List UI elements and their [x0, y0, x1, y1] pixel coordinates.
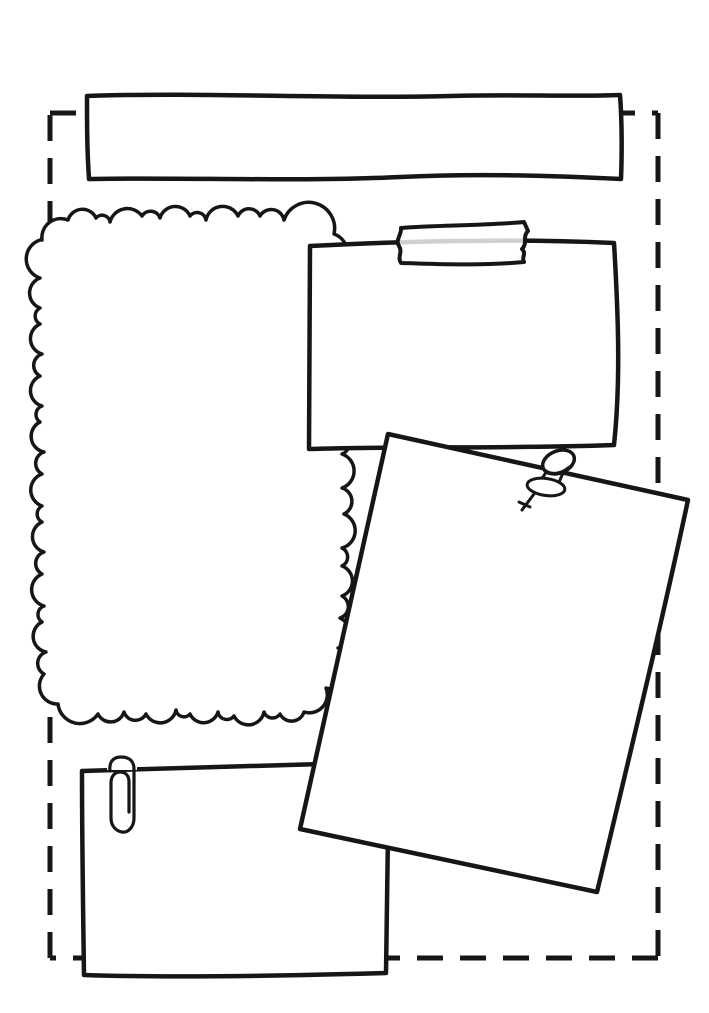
- taped-note: [309, 241, 618, 449]
- template-canvas: [0, 0, 709, 1013]
- scalloped-frame: [26, 202, 356, 724]
- title-banner-box: [87, 95, 622, 180]
- taped-note-group: [309, 222, 618, 449]
- washi-tape-icon: [398, 222, 528, 264]
- scalloped-cloud-frame: [26, 202, 356, 724]
- title-banner: [87, 95, 622, 180]
- worksheet-page: [0, 0, 709, 1013]
